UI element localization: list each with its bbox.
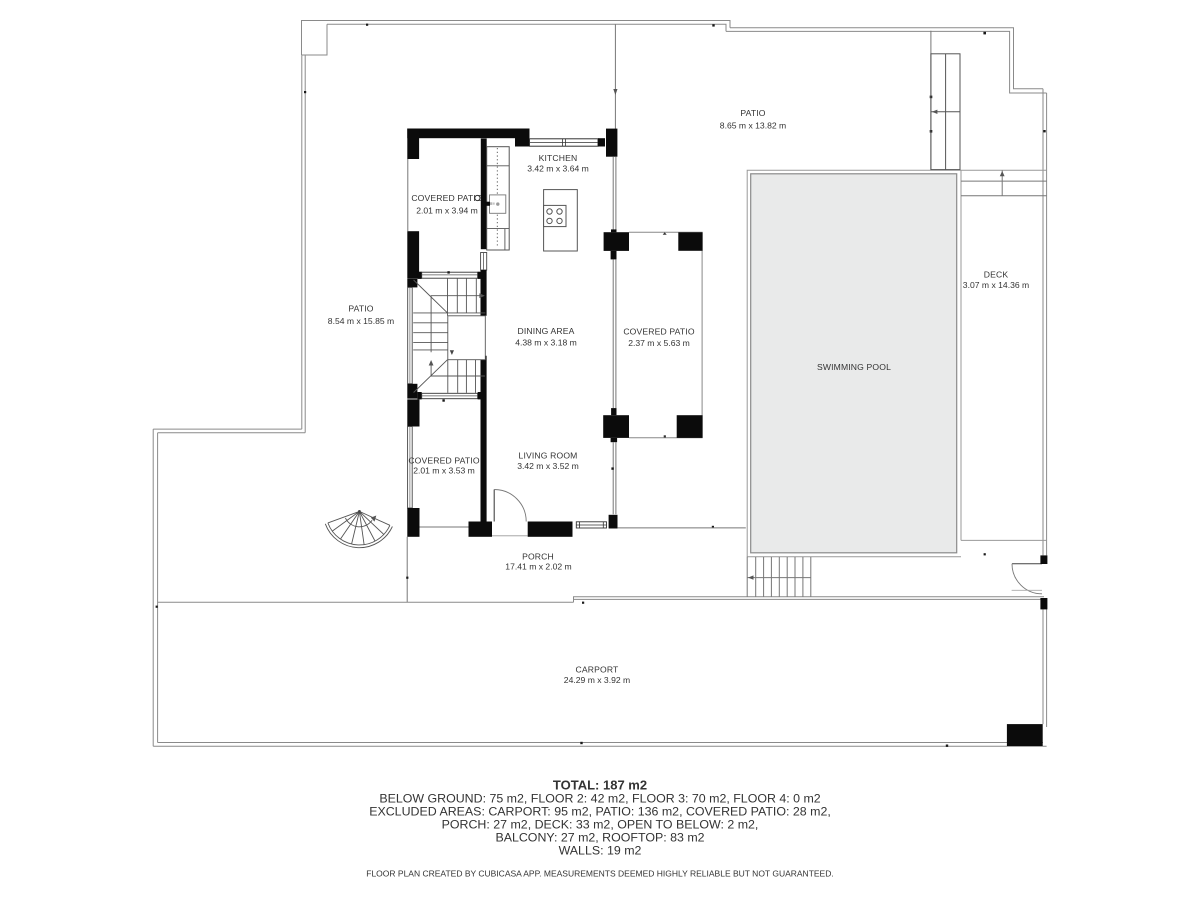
svg-text:BALCONY: 27 m2, ROOFTOP: 83 m2: BALCONY: 27 m2, ROOFTOP: 83 m2	[495, 831, 704, 845]
svg-text:PATIO: PATIO	[740, 108, 765, 118]
svg-text:PORCH: 27 m2, DECK: 33 m2, OPE: PORCH: 27 m2, DECK: 33 m2, OPEN TO BELOW…	[442, 818, 759, 832]
svg-text:2.37 m x 5.63 m: 2.37 m x 5.63 m	[628, 338, 690, 348]
svg-text:COVERED PATIO: COVERED PATIO	[408, 456, 480, 466]
svg-text:SWIMMING POOL: SWIMMING POOL	[817, 362, 891, 372]
svg-text:4.38 m x 3.18 m: 4.38 m x 3.18 m	[515, 338, 577, 348]
svg-text:CARPORT: CARPORT	[576, 664, 620, 674]
svg-text:KITCHEN: KITCHEN	[539, 153, 578, 163]
svg-text:PATIO: PATIO	[348, 304, 373, 314]
svg-text:3.07 m x 14.36 m: 3.07 m x 14.36 m	[963, 280, 1029, 290]
svg-text:24.29 m x 3.92 m: 24.29 m x 3.92 m	[564, 675, 630, 685]
svg-text:8.54 m x 15.85 m: 8.54 m x 15.85 m	[328, 316, 394, 326]
svg-text:FLOOR PLAN CREATED BY CUBICASA: FLOOR PLAN CREATED BY CUBICASA APP. MEAS…	[366, 869, 833, 879]
svg-text:LIVING ROOM: LIVING ROOM	[519, 451, 578, 461]
svg-text:EXCLUDED AREAS: CARPORT: 95 m2: EXCLUDED AREAS: CARPORT: 95 m2, PATIO: 1…	[369, 805, 831, 819]
svg-text:COVERED PATIO: COVERED PATIO	[411, 193, 483, 203]
svg-text:2.01 m x 3.53 m: 2.01 m x 3.53 m	[413, 466, 475, 476]
svg-text:PORCH: PORCH	[522, 552, 554, 562]
svg-text:17.41 m x 2.02 m: 17.41 m x 2.02 m	[505, 562, 571, 572]
svg-text:DINING AREA: DINING AREA	[517, 326, 574, 336]
svg-text:3.42 m x 3.52 m: 3.42 m x 3.52 m	[517, 461, 579, 471]
svg-text:DECK: DECK	[984, 270, 1009, 280]
svg-text:8.65 m x 13.82 m: 8.65 m x 13.82 m	[720, 121, 786, 131]
svg-text:2.01 m x 3.94 m: 2.01 m x 3.94 m	[416, 206, 478, 216]
svg-text:WALLS: 19 m2: WALLS: 19 m2	[559, 844, 642, 858]
svg-text:BELOW GROUND: 75 m2, FLOOR 2:: BELOW GROUND: 75 m2, FLOOR 2: 42 m2, FLO…	[379, 792, 820, 806]
svg-text:COVERED PATIO: COVERED PATIO	[623, 326, 695, 336]
svg-text:TOTAL: 187 m2: TOTAL: 187 m2	[553, 778, 647, 793]
svg-text:3.42 m x 3.64 m: 3.42 m x 3.64 m	[527, 164, 589, 174]
